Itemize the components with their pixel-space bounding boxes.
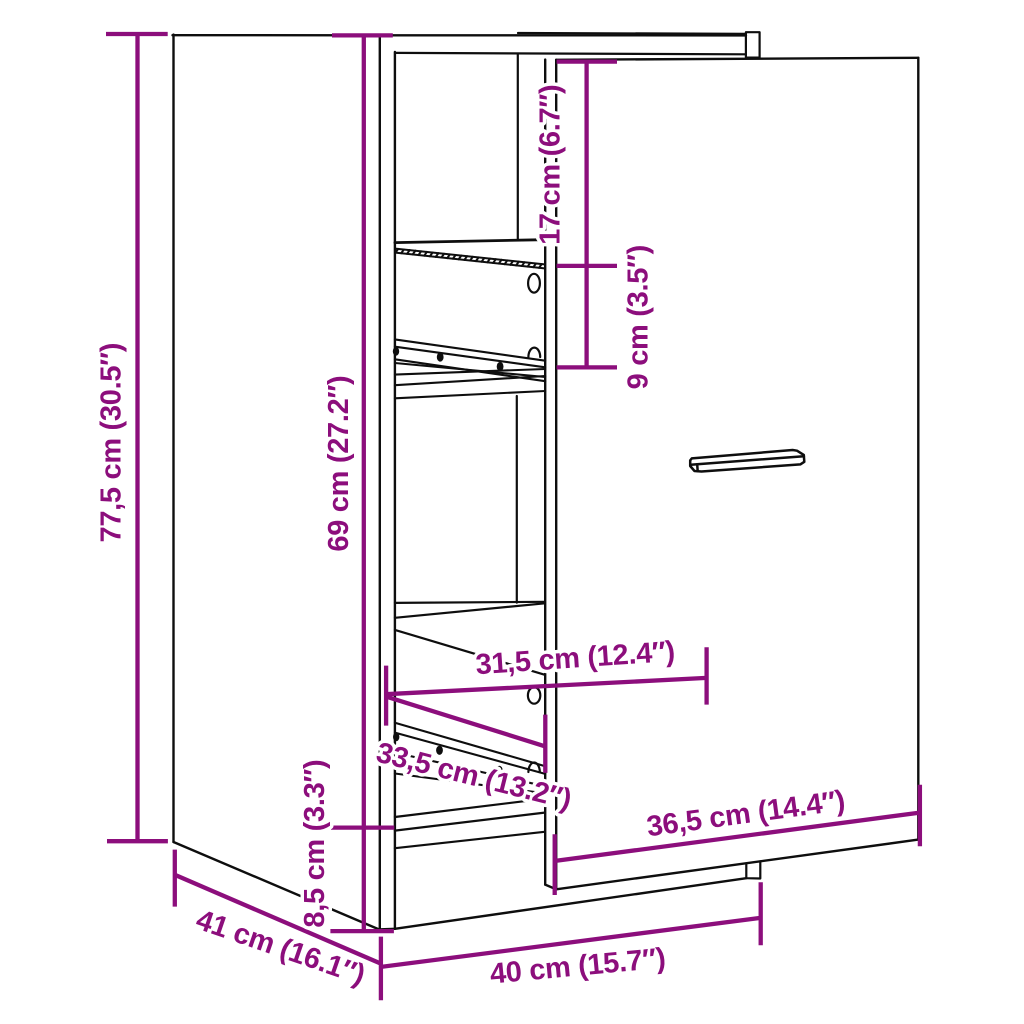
svg-text:9 cm (3.5″): 9 cm (3.5″)	[623, 245, 655, 389]
svg-text:77,5 cm (30.5″): 77,5 cm (30.5″)	[96, 343, 128, 543]
svg-text:69 cm (27.2″): 69 cm (27.2″)	[323, 376, 355, 552]
svg-text:8,5 cm (3.3″): 8,5 cm (3.3″)	[299, 760, 331, 928]
svg-text:31,5 cm (12.4″): 31,5 cm (12.4″)	[475, 636, 676, 682]
svg-text:17 cm (6.7″): 17 cm (6.7″)	[535, 85, 567, 245]
